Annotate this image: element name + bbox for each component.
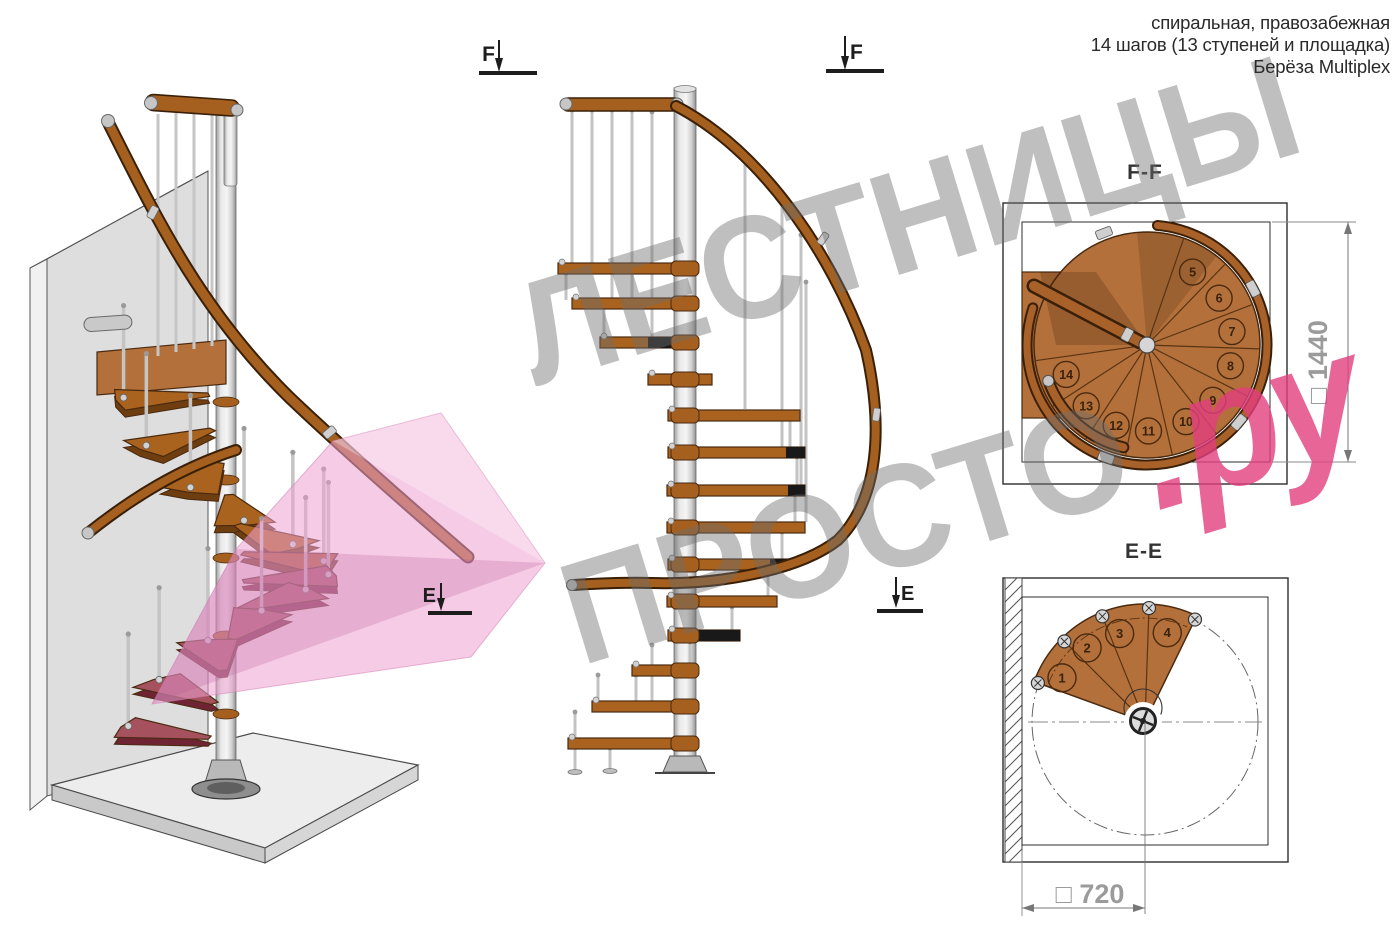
step-connector (668, 481, 674, 487)
dimension-arrow (1022, 904, 1034, 912)
step-connector (559, 259, 565, 265)
baluster-cap (121, 303, 126, 308)
header-line-steps: 14 шагов (13 ступеней и площадка) (1091, 34, 1390, 56)
baluster-foot (568, 770, 582, 775)
baluster-cap (188, 393, 193, 398)
step-connector (669, 555, 675, 561)
rail-joint-sleeve (872, 408, 881, 422)
step-connector (593, 697, 599, 703)
pole-collar (213, 397, 239, 407)
step-shadow-gap (697, 630, 740, 641)
baluster-foot (187, 484, 194, 491)
baluster-cap (290, 450, 295, 455)
baluster-cap (596, 673, 601, 678)
baluster-foot (603, 769, 617, 774)
header-line-type: спиральная, правозабежная (1091, 12, 1390, 34)
baluster-cap (804, 280, 809, 285)
section-marker-f-left: F (479, 40, 537, 73)
ff-dimension-label: □ 1440 (1303, 320, 1333, 404)
pole-top-cap (674, 86, 696, 93)
rail-end-cap (82, 527, 94, 539)
ff-step-number: 10 (1179, 415, 1193, 429)
pole-collar (671, 408, 699, 423)
ff-step-number: 5 (1189, 266, 1196, 280)
pole-base (663, 756, 707, 772)
pole-collar (671, 628, 699, 643)
step-connector (669, 626, 675, 632)
pole-collar (671, 296, 699, 311)
rail-end-cap (567, 580, 578, 591)
step-connector (569, 734, 575, 740)
pole-collar (671, 594, 699, 609)
isometric-view (30, 94, 545, 863)
baluster-cap (650, 643, 655, 648)
step-connector (668, 592, 674, 598)
ff-step-number: 12 (1109, 419, 1123, 433)
ff-step-number: 7 (1228, 325, 1235, 339)
drawing-area: 567891011121314 1234 F-F E-E □ 1440 □ 72… (0, 0, 1400, 940)
baluster-cap (573, 710, 578, 715)
ee-step-number: 3 (1116, 626, 1123, 641)
elevation-view (558, 86, 881, 775)
ee-step-number: 1 (1058, 670, 1065, 685)
pole-collar (213, 709, 239, 719)
header-line-material: Берёза Multiplex (1091, 56, 1390, 78)
section-ee-view: 1234 (1003, 561, 1288, 916)
baluster-cap (241, 426, 246, 431)
wall-edge (30, 259, 47, 810)
baluster-cap (126, 631, 131, 636)
step-connector (601, 333, 607, 339)
baluster-foot (120, 394, 127, 401)
ee-step-number: 2 (1084, 640, 1091, 655)
rail-end-cap (231, 104, 243, 116)
ff-step-number: 13 (1079, 399, 1093, 413)
section-ff-title: F-F (1127, 161, 1163, 184)
marker-letter: E (901, 583, 914, 605)
ff-pole-ball (1139, 337, 1155, 353)
baluster-foot (125, 723, 132, 730)
wall-rail-bracket (84, 315, 133, 332)
step-connector (669, 406, 675, 412)
pole-base-hub (207, 782, 245, 794)
baluster-cap (157, 585, 162, 590)
marker-letter: F (850, 41, 863, 64)
ff-step-number: 14 (1059, 368, 1073, 382)
dimension-arrow (1133, 904, 1145, 912)
pole-collar (671, 663, 699, 678)
top-rail (562, 98, 680, 111)
pole-collar (671, 372, 699, 387)
pole-collar (671, 445, 699, 460)
step-connector (633, 661, 639, 667)
section-ee-title: E-E (1125, 540, 1163, 563)
ff-step-number: 8 (1227, 359, 1234, 373)
ff-step-number: 11 (1142, 424, 1155, 438)
ee-step-number: 4 (1164, 625, 1172, 640)
baluster-foot (156, 676, 163, 683)
pole-collar (671, 483, 699, 498)
landing-rail (145, 94, 240, 117)
pole-collar (671, 520, 699, 535)
dimension-arrow (1344, 222, 1352, 234)
rail-end-cap (102, 115, 115, 128)
step-shadow-gap (788, 485, 805, 496)
section-marker-f-right: F (826, 36, 884, 71)
staircase-drawing-sheet: 567891011121314 1234 F-F E-E □ 1440 □ 72… (0, 0, 1400, 940)
ff-step-number: 6 (1216, 292, 1223, 306)
ee-dimension-label: □ 720 (1056, 879, 1125, 909)
baluster-cap (205, 546, 210, 551)
header-note: спиральная, правозабежная 14 шагов (13 с… (1091, 12, 1390, 78)
pole-collar (671, 736, 699, 751)
baluster-foot (241, 517, 248, 524)
step-shadow-gap (786, 447, 805, 458)
section-marker-e-right: E (877, 577, 923, 611)
pole-collar (671, 699, 699, 714)
marker-letter: F (482, 43, 495, 66)
step-connector (669, 443, 675, 449)
pole-collar (671, 557, 699, 572)
rail-end-cap (145, 97, 158, 110)
pole-collar (671, 261, 699, 276)
pole-collar (671, 335, 699, 350)
baluster-cap (144, 351, 149, 356)
marker-letter: E (423, 585, 436, 607)
dimension-arrow (1344, 450, 1352, 462)
step-connector (649, 370, 655, 376)
baluster-foot (143, 442, 150, 449)
rail-end-cap (560, 98, 572, 110)
rail-joint-sleeve (817, 231, 830, 246)
ff-step-number: 9 (1209, 394, 1216, 408)
hatch-line (1005, 561, 1022, 578)
hatch-line (1005, 861, 1022, 878)
step-connector (573, 294, 579, 300)
step-connector (668, 518, 674, 524)
rail-end-cap (1043, 375, 1054, 386)
